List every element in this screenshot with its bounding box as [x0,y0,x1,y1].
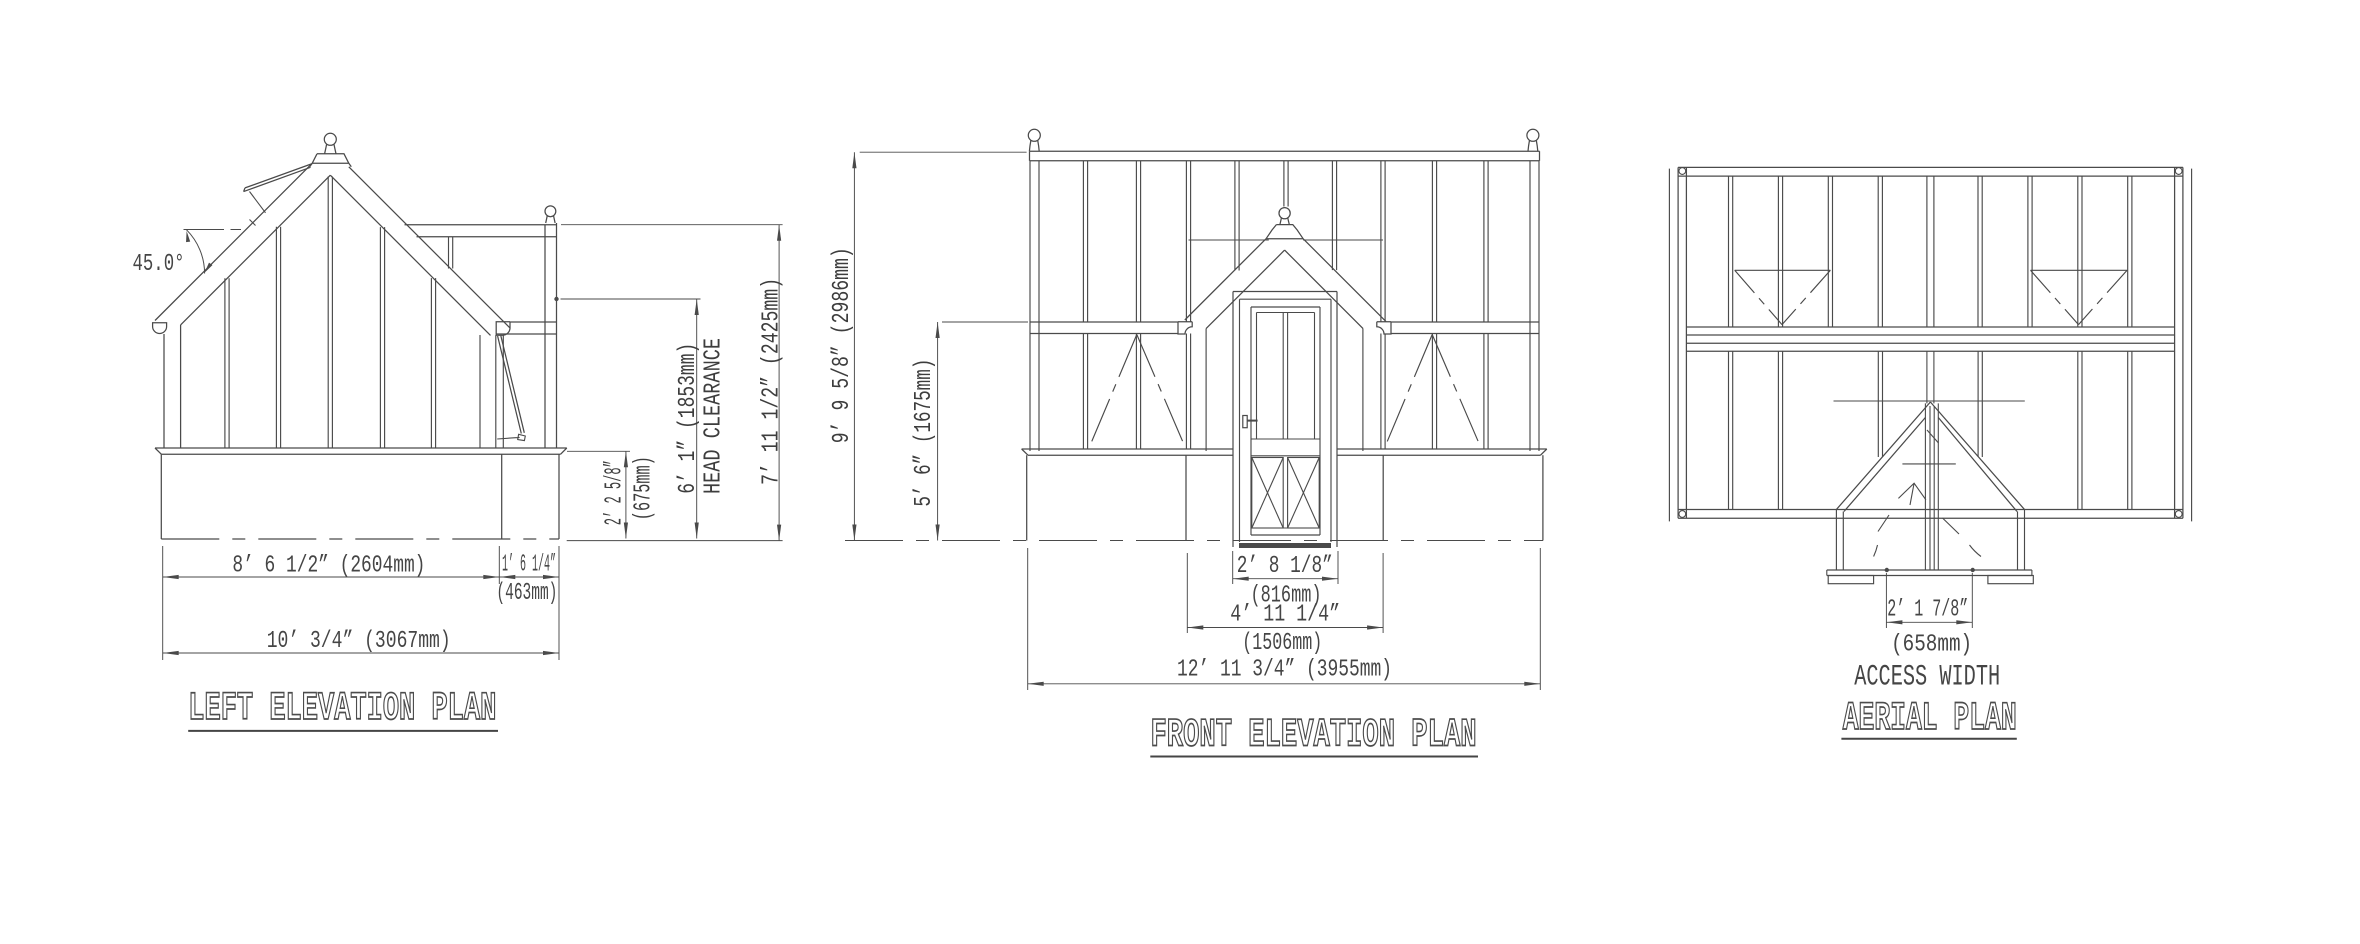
svg-text:FRONT ELEVATION PLAN: FRONT ELEVATION PLAN [1151,714,1477,759]
svg-text:2’ 1 7/8”: 2’ 1 7/8” [1887,597,1968,624]
svg-text:(1506mm): (1506mm) [1242,630,1322,657]
svg-text:4’ 11 1/4”: 4’ 11 1/4” [1230,602,1340,629]
svg-text:5’ 6” (1675mm): 5’ 6” (1675mm) [911,359,938,507]
svg-text:12’ 11 3/4” (3955mm): 12’ 11 3/4” (3955mm) [1177,657,1392,684]
svg-text:1’ 6 1/4”: 1’ 6 1/4” [502,552,556,579]
svg-text:2’ 2 5/8”: 2’ 2 5/8” [601,460,628,525]
svg-text:2’ 8 1/8”: 2’ 8 1/8” [1237,553,1333,580]
svg-text:45.0°: 45.0° [133,251,185,278]
svg-text:ACCESS WIDTH: ACCESS WIDTH [1854,661,2000,695]
svg-text:(675mm): (675mm) [630,456,657,520]
svg-text:AERIAL PLAN: AERIAL PLAN [1843,697,2017,742]
svg-text:9’ 9 5/8” (2986mm): 9’ 9 5/8” (2986mm) [829,247,856,443]
svg-text:(658mm): (658mm) [1891,632,1972,659]
svg-text:6’ 1” (1853mm): 6’ 1” (1853mm) [675,343,702,494]
svg-text:HEAD CLEARANCE: HEAD CLEARANCE [701,338,728,494]
svg-text:(463mm): (463mm) [496,580,557,607]
svg-text:7’ 11 1/2” (2425mm): 7’ 11 1/2” (2425mm) [758,278,785,485]
svg-text:LEFT ELEVATION PLAN: LEFT ELEVATION PLAN [188,687,496,732]
svg-text:10’ 3/4” (3067mm): 10’ 3/4” (3067mm) [267,628,451,655]
svg-text:8’ 6 1/2” (2604mm): 8’ 6 1/2” (2604mm) [232,553,425,580]
